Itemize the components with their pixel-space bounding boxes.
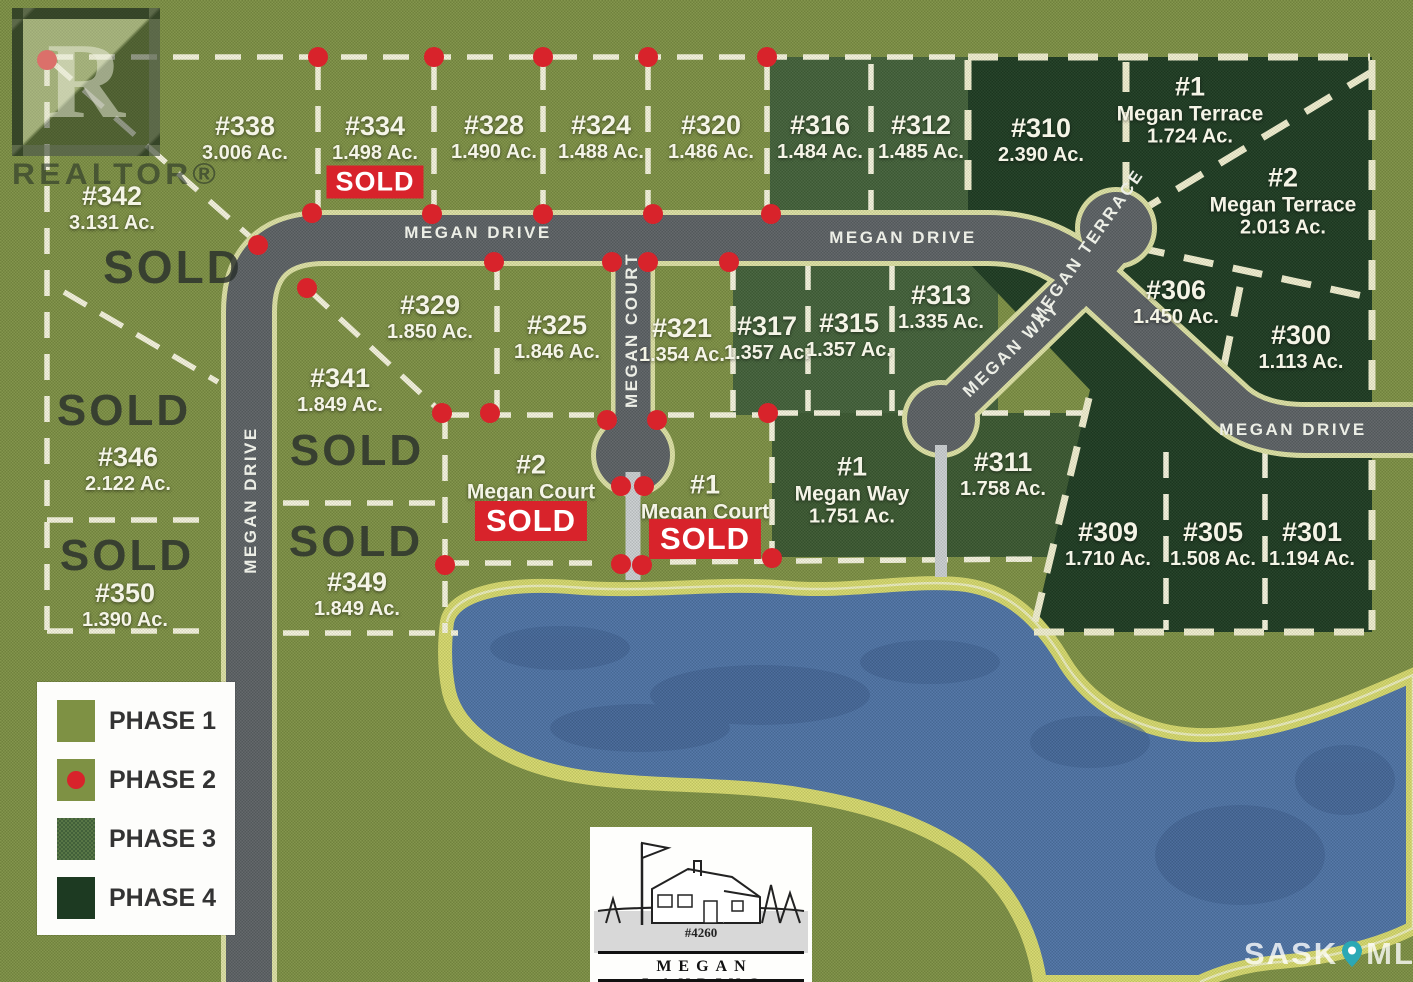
legend-label: PHASE 4 (109, 884, 216, 913)
legend-swatch-phase3-icon (57, 818, 95, 860)
legend-label: PHASE 1 (109, 707, 216, 736)
legend-swatch-phase4-icon (57, 877, 95, 919)
megan-landing-logo: #4260 MEGAN LANDING (590, 827, 812, 982)
plat-map: MEGAN DRIVEMEGAN DRIVEMEGAN DRIVEMEGAN D… (0, 0, 1413, 982)
legend-swatch-phase2-icon (57, 759, 95, 801)
legend-item-phase4: PHASE 4 (57, 877, 216, 919)
legend-label: PHASE 3 (109, 825, 216, 854)
legend-item-phase3: PHASE 3 (57, 818, 216, 860)
legend-swatch-phase1-icon (57, 700, 95, 742)
logo-lot-number: #4260 (590, 925, 812, 941)
legend-item-phase1: PHASE 1 (57, 700, 216, 742)
logo-divider-top (598, 951, 804, 954)
legend-label: PHASE 2 (109, 766, 216, 795)
legend-item-phase2: PHASE 2 (57, 759, 216, 801)
phase-legend: PHASE 1PHASE 2PHASE 3PHASE 4 (37, 682, 235, 935)
